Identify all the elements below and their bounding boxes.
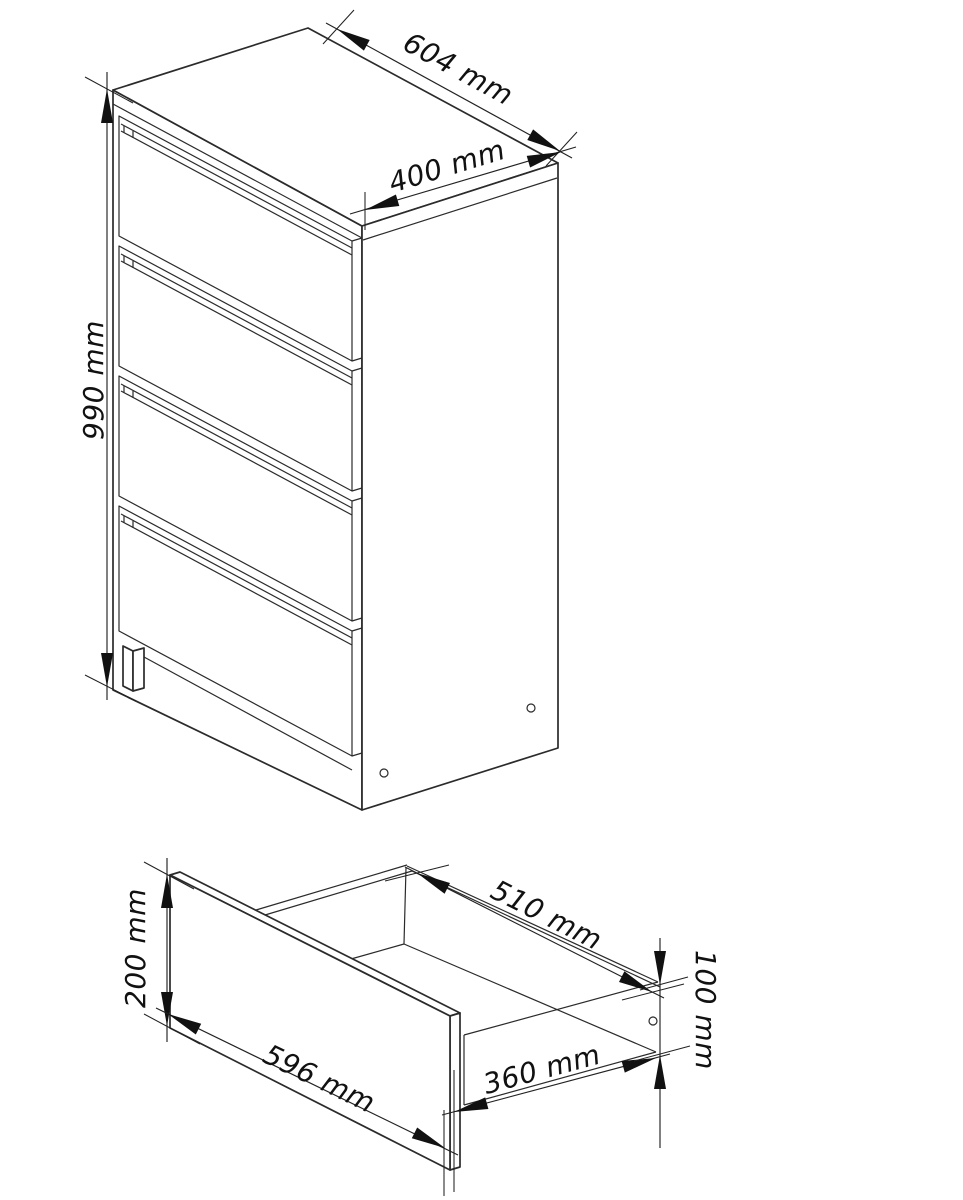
dresser-side-face — [362, 163, 558, 810]
drawer-side-hole — [649, 1017, 657, 1025]
front-panel-right-strip — [450, 1013, 460, 1170]
dimension-diagram-canvas: 604 mm 400 mm 990 mm — [0, 0, 963, 1200]
technical-drawing-page: 604 mm 400 mm 990 mm — [0, 0, 963, 1200]
front-panel-face — [170, 875, 450, 1170]
left-wall-outer-top — [256, 865, 407, 910]
back-wall-inner-top — [412, 871, 660, 987]
dimension-label-200: 200 mm — [119, 888, 152, 1008]
dimension-inner-width-510: 510 mm — [385, 865, 684, 1000]
back-left-corner-edge — [404, 868, 406, 944]
front-left-leg-front — [123, 646, 133, 691]
left-wall-inner-bottom — [351, 944, 404, 959]
right-wall-top-edge — [464, 982, 658, 1035]
dimension-label-360: 360 mm — [480, 1038, 604, 1101]
drawer-drawing — [170, 865, 660, 1170]
dimension-label-100: 100 mm — [689, 950, 722, 1070]
dimension-label-510: 510 mm — [486, 873, 608, 957]
front-left-leg-side — [133, 648, 144, 691]
dimension-side-height-100: 100 mm — [634, 938, 722, 1148]
drawer-front-panel — [170, 872, 460, 1170]
left-wall-inner-top — [265, 871, 412, 915]
dimension-label-990: 990 mm — [77, 320, 110, 440]
